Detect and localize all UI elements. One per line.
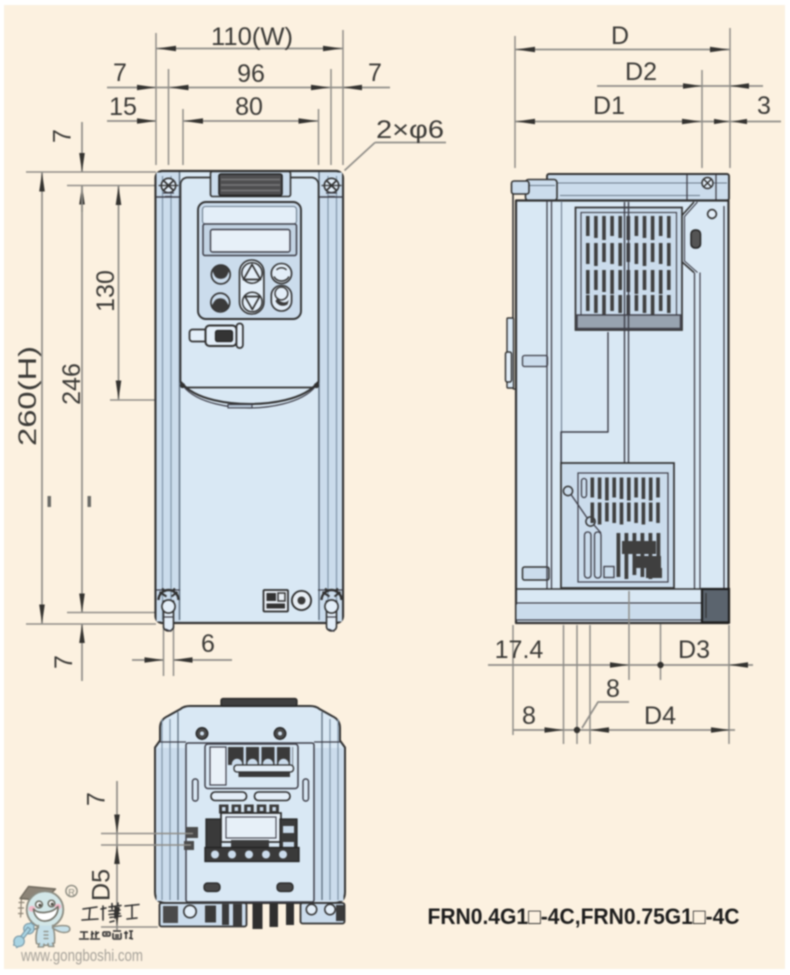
svg-text:15: 15 <box>109 93 137 121</box>
svg-text:D4: D4 <box>644 702 676 730</box>
svg-text:7: 7 <box>50 655 78 669</box>
svg-text:110(W): 110(W) <box>211 23 293 51</box>
svg-text:96: 96 <box>237 60 265 88</box>
svg-text:7: 7 <box>49 129 77 143</box>
svg-text:www.gongboshi.com: www.gongboshi.com <box>20 947 143 965</box>
svg-text:7: 7 <box>83 792 111 806</box>
svg-text:246: 246 <box>58 363 86 405</box>
svg-text:7: 7 <box>368 59 382 87</box>
svg-text:130: 130 <box>92 270 120 312</box>
svg-text:D: D <box>611 22 629 50</box>
svg-text:D1: D1 <box>593 92 625 120</box>
svg-text:D2: D2 <box>625 58 657 86</box>
svg-text:6: 6 <box>201 630 215 658</box>
svg-text:80: 80 <box>235 93 263 121</box>
svg-text:17.4: 17.4 <box>495 636 544 664</box>
svg-text:7: 7 <box>113 59 127 87</box>
svg-text:D5: D5 <box>88 869 116 901</box>
svg-text:FRN0.4G1□-4C,FRN0.75G1□-4C: FRN0.4G1□-4C,FRN0.75G1□-4C <box>428 904 740 929</box>
svg-text:D3: D3 <box>678 636 710 664</box>
svg-text:R: R <box>68 888 75 899</box>
svg-text:8: 8 <box>606 675 620 703</box>
svg-text:3: 3 <box>757 92 771 120</box>
svg-text:2×φ6: 2×φ6 <box>376 116 444 144</box>
svg-text:8: 8 <box>522 702 536 730</box>
svg-text:260(H): 260(H) <box>14 346 42 446</box>
